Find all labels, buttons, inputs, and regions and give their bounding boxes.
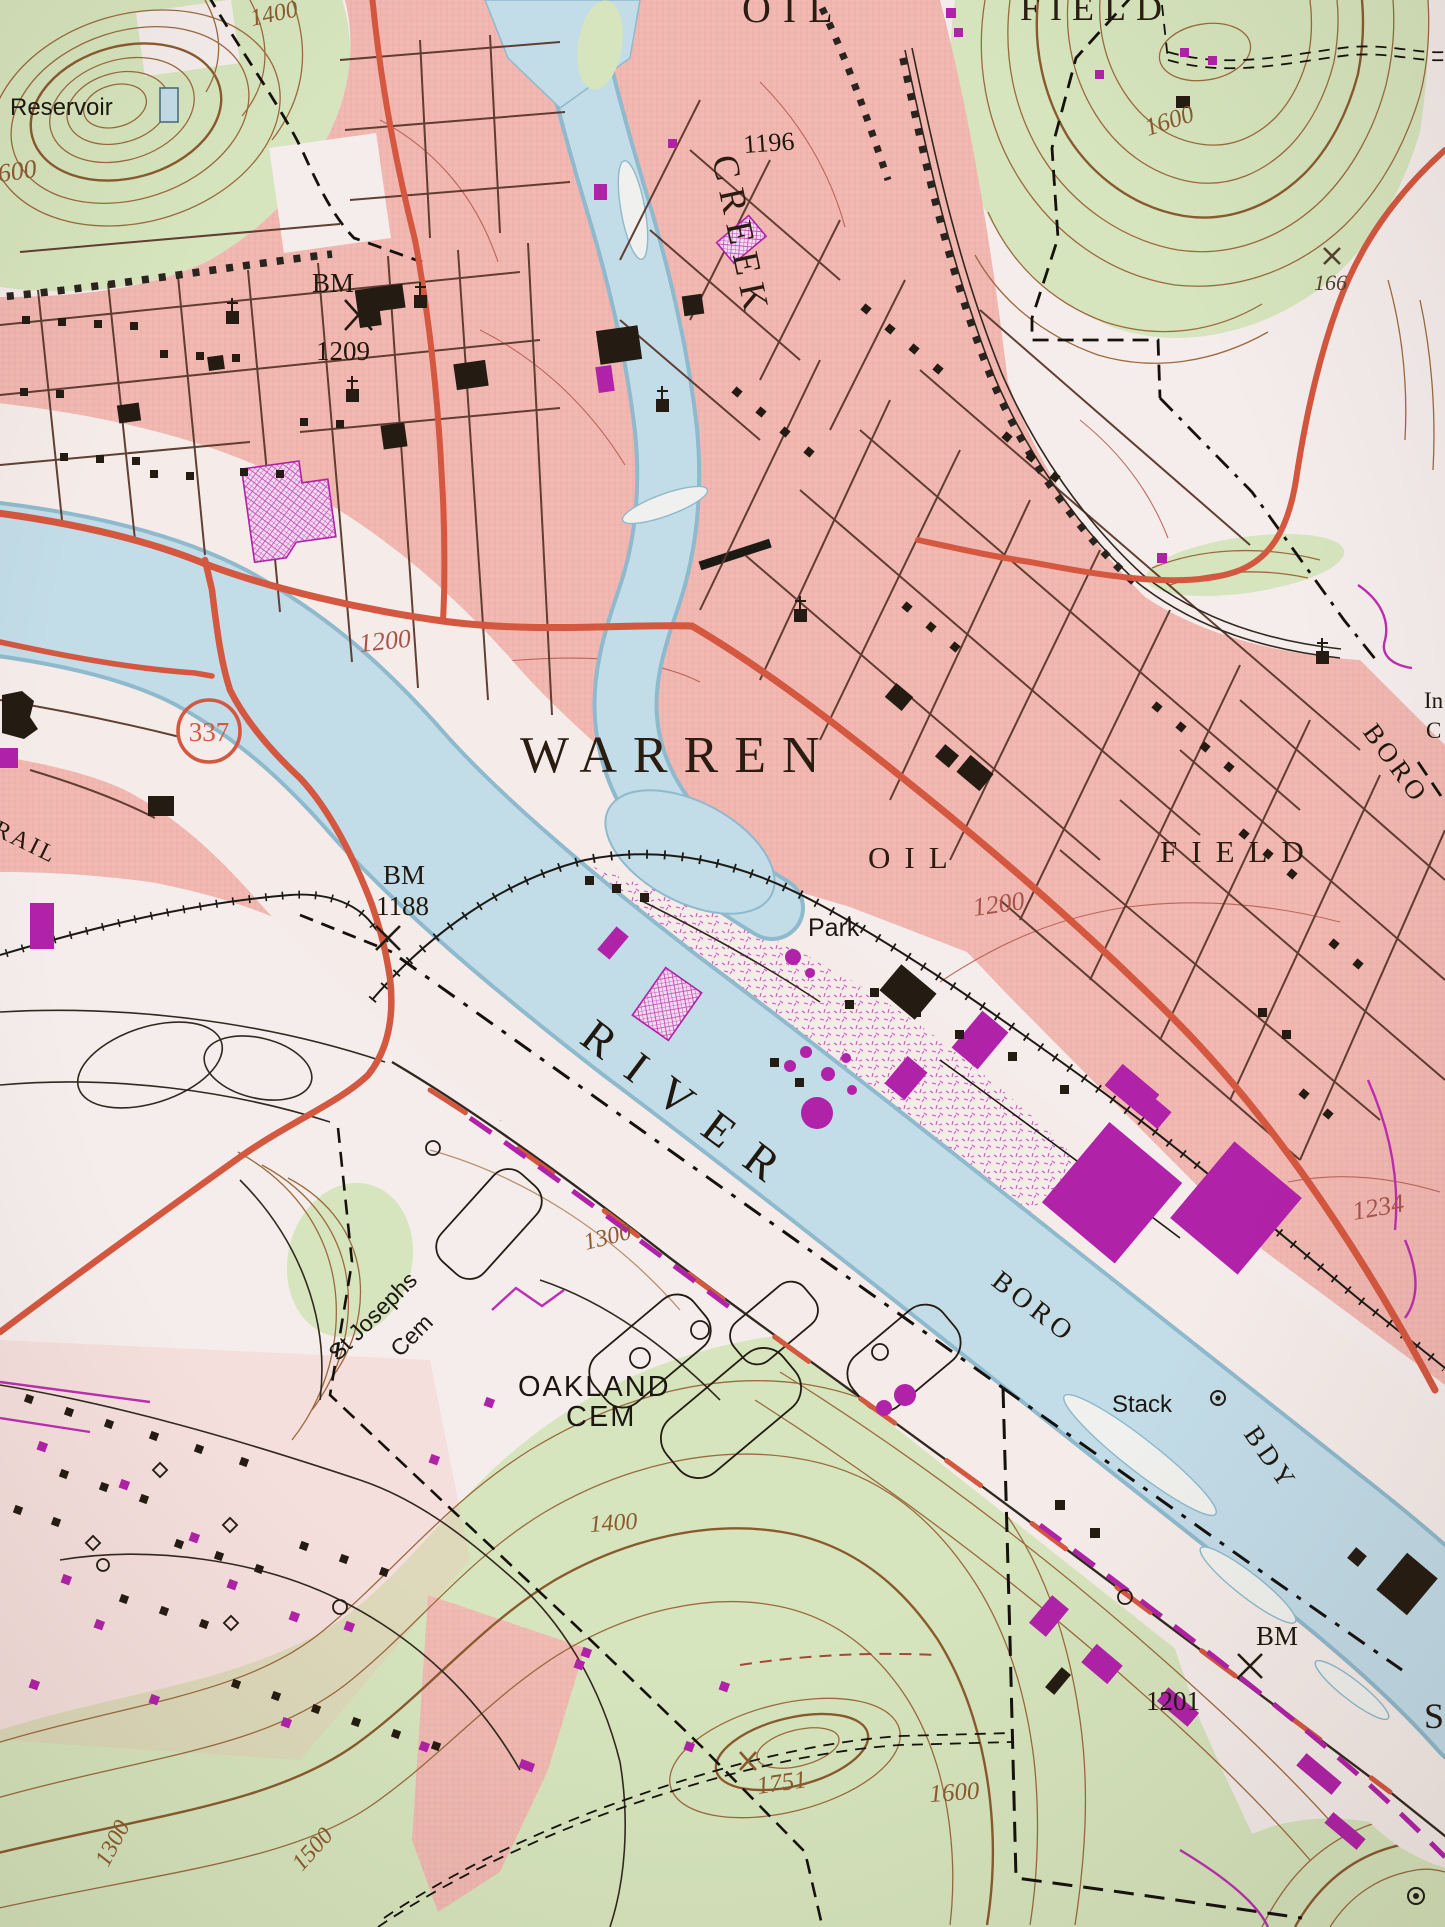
map-canvas: WARREN CREEK RIVER OIL FIELD OIL FIELD B… — [0, 0, 1445, 1927]
photo-vignette — [0, 0, 1445, 1927]
topo-map: WARREN CREEK RIVER OIL FIELD OIL FIELD B… — [0, 0, 1445, 1927]
